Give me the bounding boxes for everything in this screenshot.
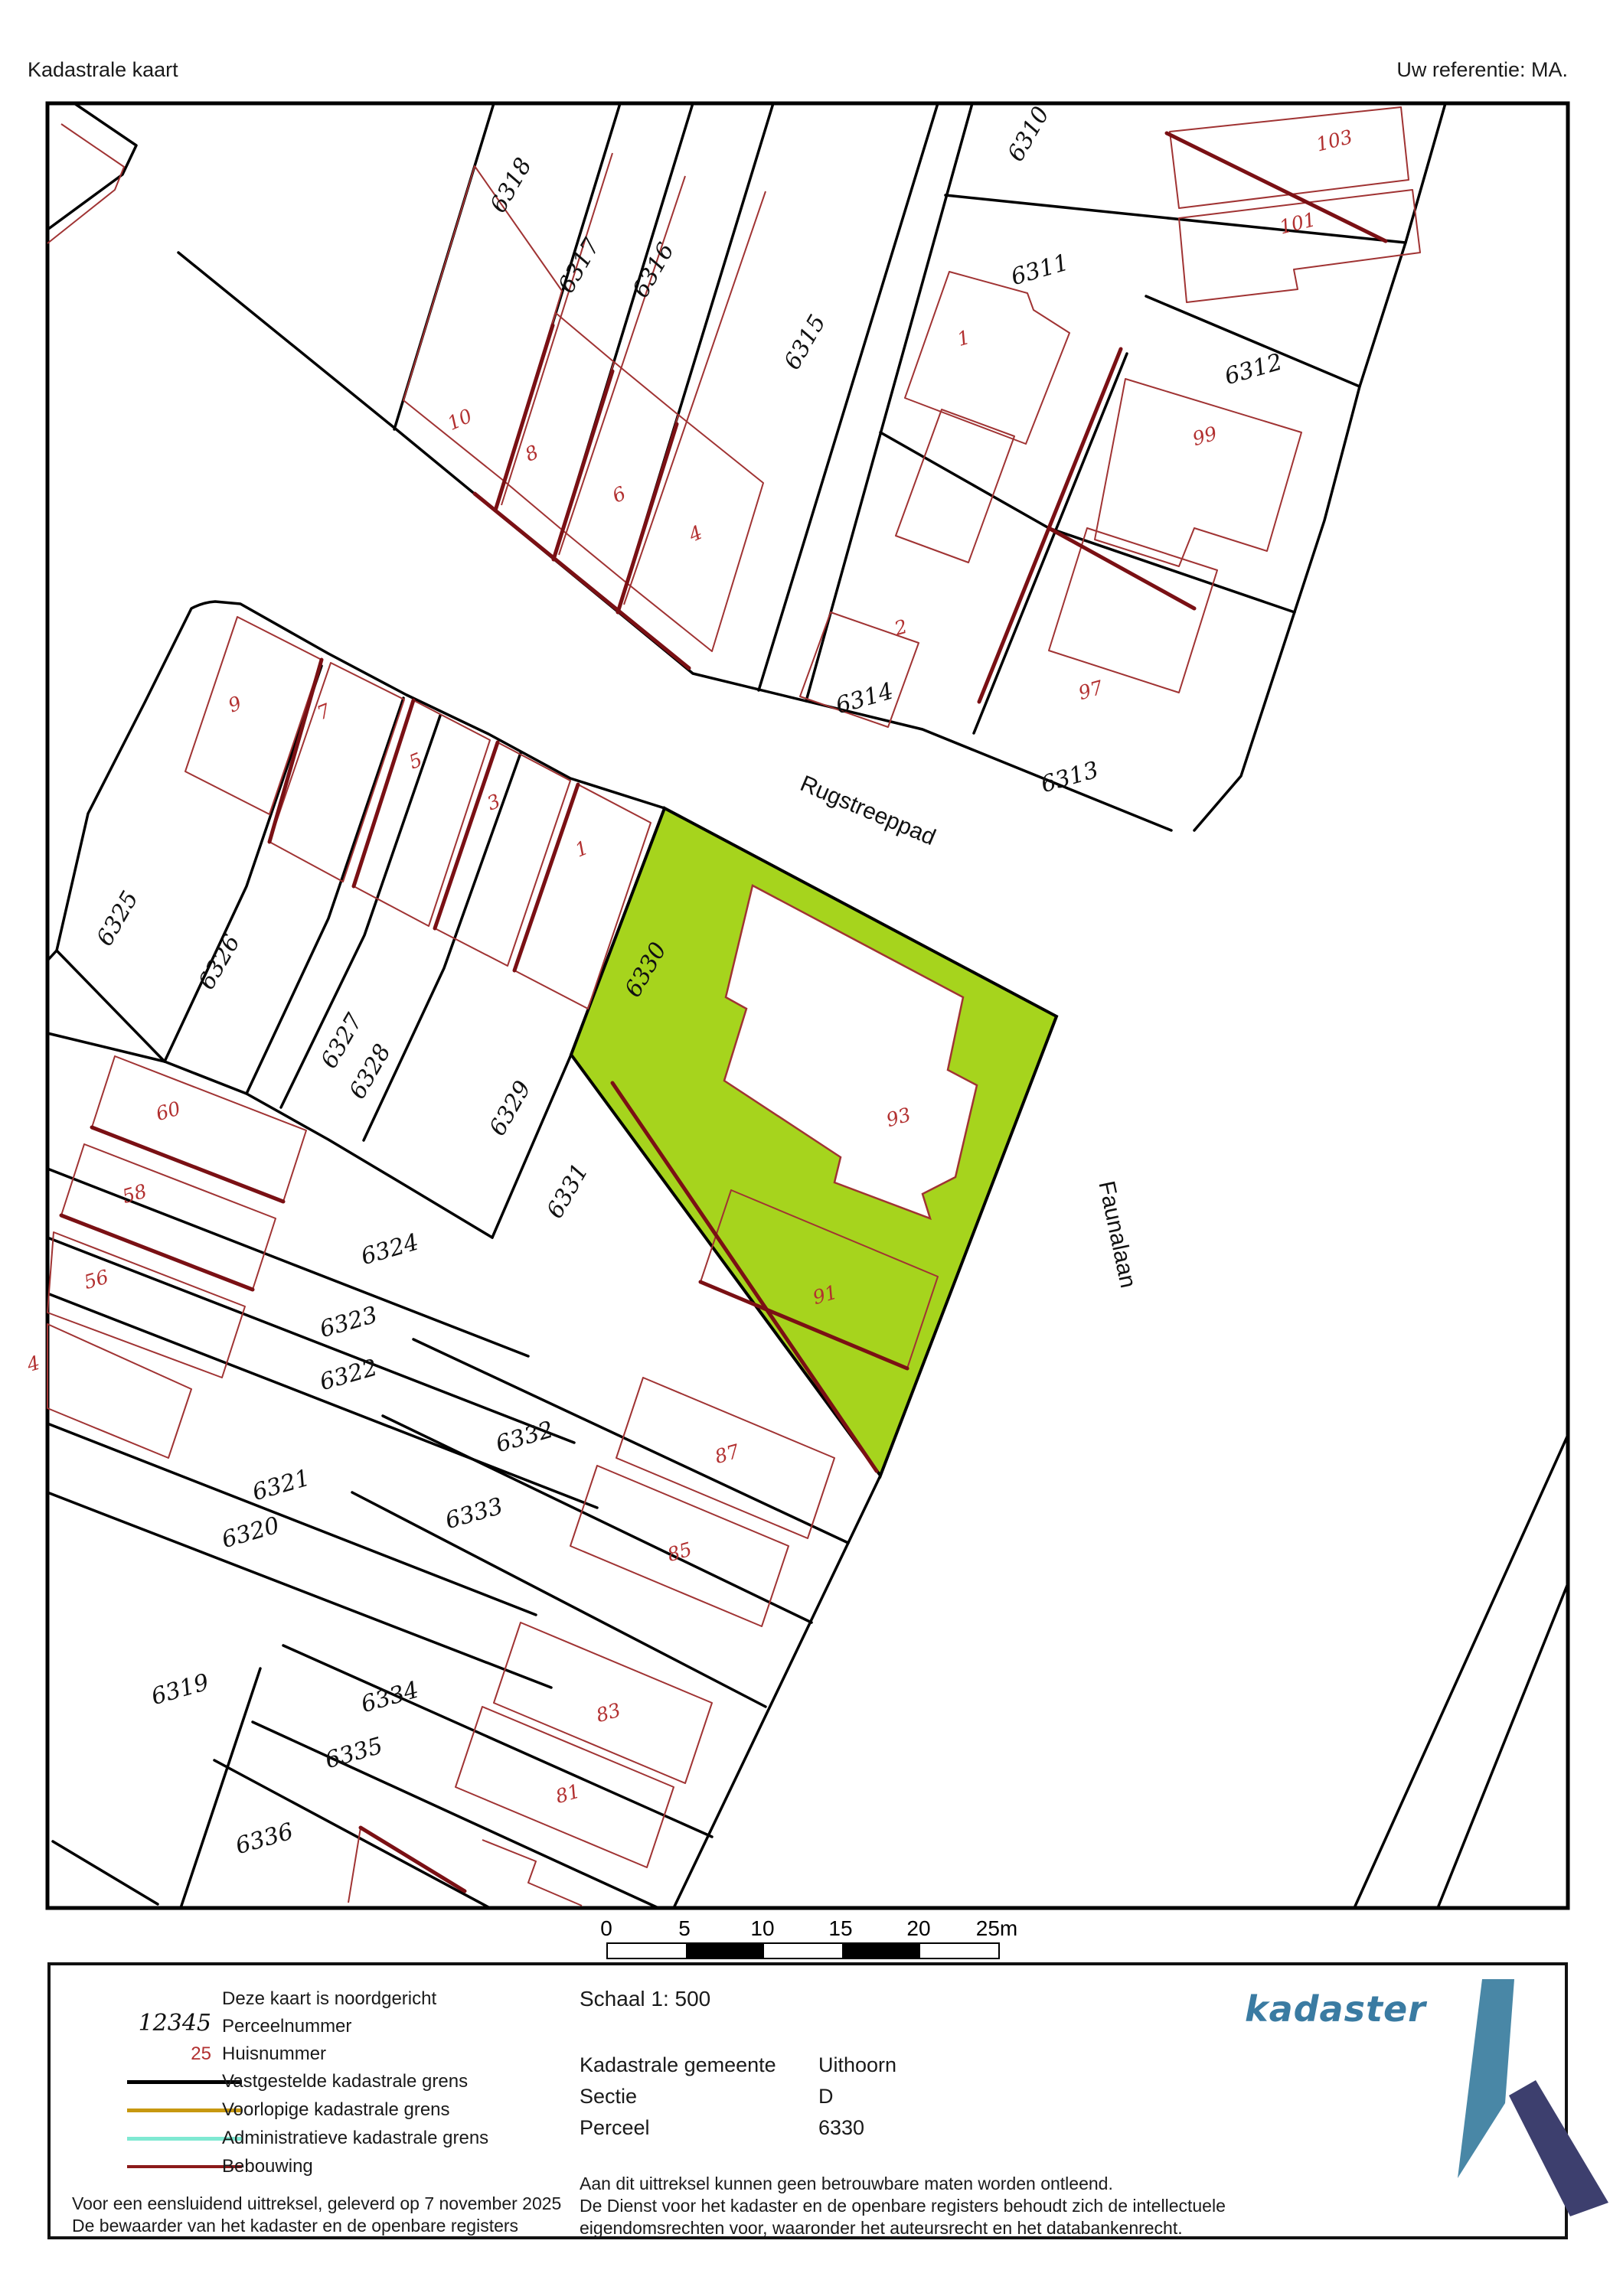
scale-tick-0: 0 <box>583 1916 629 1941</box>
house-number: 83 <box>593 1699 623 1727</box>
house-number: 6 <box>609 482 629 507</box>
parcel-label: 6321 <box>250 1465 313 1507</box>
house-number: 81 <box>553 1780 583 1808</box>
footer-keeper-note: De bewaarder van het kadaster en de open… <box>72 2216 518 2236</box>
detail-key-sectie: Sectie <box>580 2085 637 2108</box>
scale-bar-segment <box>842 1944 920 1958</box>
house-number: 99 <box>1190 422 1220 450</box>
parcel-label: 6313 <box>1038 757 1102 799</box>
parcel-label: 6323 <box>317 1302 380 1344</box>
scale-bar-segment <box>608 1944 686 1958</box>
parcel-label: 6317 <box>554 233 606 298</box>
house-number: 10 <box>444 404 475 434</box>
house-number: 103 <box>1314 126 1354 156</box>
scale-bar-segment <box>686 1944 764 1958</box>
detail-value-perceel: 6330 <box>818 2116 864 2140</box>
cadastral-map-page: { "header": { "title": "Kadastrale kaart… <box>0 0 1623 2296</box>
house-number: 5 <box>406 748 426 774</box>
legend-label-voorlopig: Voorlopige kadastrale grens <box>222 2099 450 2121</box>
parcel-label: 6311 <box>1008 249 1072 292</box>
house-number: 2 <box>891 615 909 641</box>
parcel-label: 6320 <box>219 1512 282 1554</box>
house-number: 9 <box>225 692 245 717</box>
house-number: 97 <box>1076 676 1105 704</box>
house-number: 4 <box>684 521 705 546</box>
scale-bar <box>606 1942 1000 1959</box>
detail-value-gemeente: Uithoorn <box>818 2053 896 2077</box>
house-number: 87 <box>712 1440 742 1468</box>
parcel-label: 6324 <box>358 1229 422 1271</box>
detail-value-sectie: D <box>818 2085 834 2108</box>
parcel-label: 6331 <box>542 1159 594 1223</box>
house-number: 56 <box>81 1265 111 1293</box>
scale-bar-segment <box>920 1944 998 1958</box>
detail-key-gemeente: Kadastrale gemeente <box>580 2053 776 2077</box>
parcel-number-label: Perceelnummer <box>222 2016 351 2037</box>
parcel-label: 6329 <box>485 1076 537 1140</box>
street-label-faunalaan: Faunalaan <box>1093 1179 1141 1290</box>
house-number: 4 <box>24 1352 42 1377</box>
scale-tick-15: 15 <box>818 1916 864 1941</box>
house-number: 3 <box>484 790 504 815</box>
legend-label-vastgesteld: Vastgestelde kadastrale grens <box>222 2071 468 2092</box>
parcel-label: 6332 <box>493 1417 557 1459</box>
legend-box: Deze kaart is noordgericht 12345 Perceel… <box>47 1962 1568 2239</box>
parcel-label: 6319 <box>149 1669 212 1711</box>
disclaimer-line-3: eigendomsrechten voor, waaronder het aut… <box>580 2218 1183 2239</box>
house-number: 60 <box>153 1097 183 1125</box>
disclaimer-line-2: De Dienst voor het kadaster en de openba… <box>580 2196 1226 2216</box>
scale-tick-10: 10 <box>740 1916 785 1941</box>
house-number: 7 <box>314 700 334 725</box>
parcel-label: 6316 <box>628 238 680 302</box>
house-number-sample: 25 <box>96 2043 211 2065</box>
street-label-rugstreeppad: Rugstreeppad <box>797 771 939 850</box>
house-number: 85 <box>665 1538 694 1567</box>
house-number: 1 <box>955 326 972 351</box>
house-number: 58 <box>119 1180 149 1208</box>
north-note: Deze kaart is noordgericht <box>222 1988 436 2010</box>
detail-key-perceel: Perceel <box>580 2116 650 2140</box>
parcel-label: 6336 <box>233 1818 296 1861</box>
parcel-label: 6314 <box>833 678 896 720</box>
logo-blade-dark <box>1509 2080 1608 2216</box>
parcel-label: 6325 <box>92 886 144 951</box>
parcel-number-sample: 12345 <box>96 2010 211 2037</box>
parcel-label: 6310 <box>1003 102 1055 166</box>
house-number: 8 <box>521 441 541 466</box>
disclaimer-line-1: Aan dit uittreksel kunnen geen betrouwba… <box>580 2174 1113 2194</box>
scale-tick-25m: 25m <box>974 1916 1020 1941</box>
logo-blade-light <box>1458 1979 1514 2178</box>
kadaster-logo-mark <box>1344 1973 1612 2229</box>
house-number: 1 <box>572 837 592 862</box>
scale-label: Schaal 1: 500 <box>580 1987 710 2011</box>
scale-bar-segment <box>764 1944 842 1958</box>
parcel-label: 6326 <box>194 930 246 994</box>
parcel-label: 6322 <box>317 1355 380 1397</box>
scale-tick-20: 20 <box>896 1916 942 1941</box>
house-number-label: Huisnummer <box>222 2043 326 2065</box>
parcel-label: 6315 <box>779 310 831 374</box>
parcel-label: 6318 <box>485 153 537 217</box>
parcel-label: 6333 <box>442 1493 506 1535</box>
footer-delivery-note: Voor een eensluidend uittreksel, gelever… <box>72 2193 561 2214</box>
legend-label-administratief: Administratieve kadastrale grens <box>222 2128 488 2149</box>
legend-label-bebouwing: Bebouwing <box>222 2156 313 2177</box>
scale-tick-5: 5 <box>661 1916 707 1941</box>
parcel-label: 6312 <box>1222 349 1285 391</box>
